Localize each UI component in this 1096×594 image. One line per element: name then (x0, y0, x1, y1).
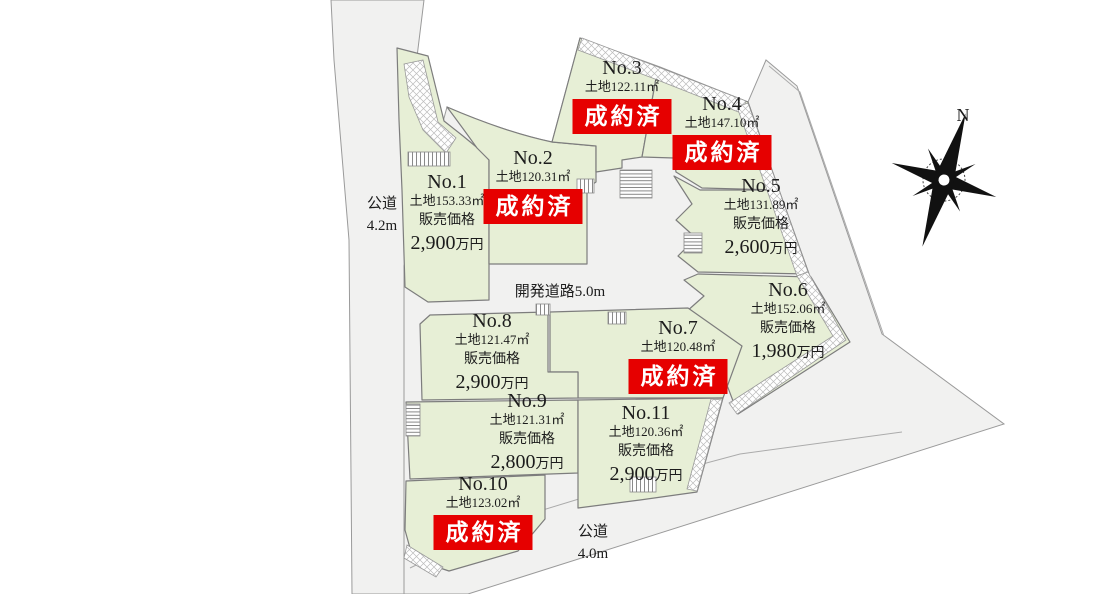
compass-north-label: N (957, 106, 970, 124)
lot-label-no4: No.4 土地147.10㎡ 成約済 (673, 94, 772, 170)
lot-label-no3: No.3 土地122.11㎡ 成約済 (573, 58, 672, 134)
lot-number: No.4 (673, 94, 772, 115)
lot-number: No.5 (724, 176, 799, 197)
lot-price-label: 販売価格 (410, 212, 485, 229)
lot-number: No.11 (609, 403, 684, 424)
sold-badge: 成約済 (434, 515, 533, 550)
lot-area: 土地147.10㎡ (673, 115, 772, 131)
lot-number: No.8 (455, 311, 530, 332)
lot-label-no5: No.5 土地131.89㎡ 販売価格 2,600万円 (724, 176, 799, 262)
lot-number: No.9 (490, 391, 565, 412)
lot-label-no11: No.11 土地120.36㎡ 販売価格 2,900万円 (609, 403, 684, 489)
lot-price-unit: 万円 (455, 238, 483, 253)
lot-number: No.7 (629, 318, 728, 339)
road-name: 開発道路5.0m (515, 281, 605, 303)
lot-area: 土地121.47㎡ (455, 332, 530, 348)
lot-price: 1,980 (751, 340, 796, 362)
stairs-icon-no5 (684, 233, 702, 253)
lot-area: 土地152.06㎡ (751, 301, 826, 317)
lot-price-unit: 万円 (535, 457, 563, 472)
stairs-icon-no9 (406, 404, 420, 436)
lot-label-no2: No.2 土地120.31㎡ 成約済 (484, 148, 583, 224)
sold-badge: 成約済 (629, 359, 728, 394)
lot-area: 土地120.31㎡ (484, 169, 583, 185)
lot-number: No.6 (751, 280, 826, 301)
road-label-left: 公道 4.2m (367, 193, 397, 237)
lot-label-no9: No.9 土地121.31㎡ 販売価格 2,800万円 (490, 391, 565, 477)
lot-label-no6: No.6 土地152.06㎡ 販売価格 1,980万円 (751, 280, 826, 366)
stairs-icon-no8 (536, 304, 550, 315)
lot-price-unit: 万円 (654, 469, 682, 484)
lot-price: 2,900 (410, 232, 455, 254)
lot-price-unit: 万円 (769, 242, 797, 257)
lot-label-no7: No.7 土地120.48㎡ 成約済 (629, 318, 728, 394)
road-size: 4.0m (578, 543, 608, 565)
lot-price: 2,900 (455, 371, 500, 393)
stairs-icon-road-stub (620, 170, 652, 198)
lot-number: No.1 (410, 172, 485, 193)
lot-area: 土地120.48㎡ (629, 339, 728, 355)
lot-number: No.10 (434, 474, 533, 495)
lot-label-no8: No.8 土地121.47㎡ 販売価格 2,900万円 (455, 311, 530, 397)
lot-price: 2,900 (609, 463, 654, 485)
compass-north-icon (870, 96, 1018, 263)
sold-badge: 成約済 (573, 99, 672, 134)
road-size: 4.2m (367, 215, 397, 237)
lot-area: 土地131.89㎡ (724, 197, 799, 213)
lot-area: 土地122.11㎡ (573, 79, 672, 95)
lot-price-label: 販売価格 (724, 216, 799, 233)
lot-area: 土地123.02㎡ (434, 495, 533, 511)
stairs-icon-no7 (608, 312, 626, 324)
lot-number: No.3 (573, 58, 672, 79)
lot-area: 土地120.36㎡ (609, 424, 684, 440)
lot-label-no1: No.1 土地153.33㎡ 販売価格 2,900万円 (410, 172, 485, 258)
road-label-bottom: 公道 4.0m (578, 521, 608, 565)
lot-price-label: 販売価格 (609, 443, 684, 460)
lot-label-no10: No.10 土地123.02㎡ 成約済 (434, 474, 533, 550)
lot-area: 土地153.33㎡ (410, 193, 485, 209)
road-label-development: 開発道路5.0m (515, 281, 605, 303)
lot-area: 土地121.31㎡ (490, 412, 565, 428)
road-name: 公道 (578, 521, 608, 543)
lot-number: No.2 (484, 148, 583, 169)
lot-price: 2,800 (490, 451, 535, 473)
lot-price-label: 販売価格 (751, 320, 826, 337)
sold-badge: 成約済 (484, 189, 583, 224)
stairs-icon-no1 (408, 152, 450, 166)
lot-price-label: 販売価格 (455, 351, 530, 368)
site-plan-map: No.1 土地153.33㎡ 販売価格 2,900万円 No.2 土地120.3… (0, 0, 1096, 594)
sold-badge: 成約済 (673, 135, 772, 170)
lot-price-label: 販売価格 (490, 431, 565, 448)
lot-price-unit: 万円 (796, 346, 824, 361)
road-name: 公道 (367, 193, 397, 215)
lot-price: 2,600 (724, 236, 769, 258)
